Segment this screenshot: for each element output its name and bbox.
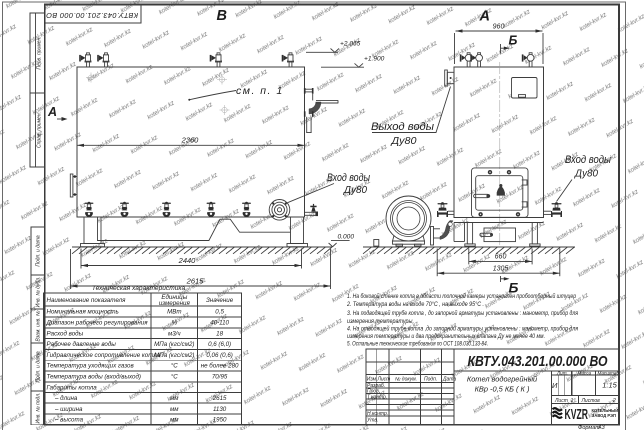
svg-text:Вход воды: Вход воды [565,154,611,166]
svg-text:0,06 (0,6): 0,06 (0,6) [206,352,232,359]
svg-text:Подп.: Подп. [424,377,437,383]
svg-text:Перв. примен.: Перв. примен. [37,36,43,69]
svg-text:Диапазон рабочего регулировани: Диапазон рабочего регулирования [46,320,149,327]
svg-text:5. Остальные технические треб: 5. Остальные технические требования по О… [347,341,488,348]
svg-text:1. На боковой стенке котла в: 1. На боковой стенке котла в области топ… [347,293,576,300]
svg-text:Изм.Лист: Изм.Лист [367,377,391,383]
svg-text:Лит.: Лит. [556,370,568,375]
svg-text:0,6 (6,0): 0,6 (6,0) [208,341,231,348]
svg-text:KVZR: KVZR [565,407,589,423]
svg-text:– длина: – длина [54,395,78,402]
svg-text:Расход воды: Расход воды [47,330,84,337]
svg-text:не более 280: не более 280 [201,363,239,370]
svg-text:ЗАВОД РЭП: ЗАВОД РЭП [592,413,616,418]
svg-text:м3/ч: м3/ч [168,330,181,337]
svg-text:МПа (кгс/см2): МПа (кгс/см2) [154,352,194,359]
svg-text:+1.900: +1.900 [364,56,385,63]
svg-text:2615: 2615 [212,395,227,402]
svg-text:Взам. инв. №: Взам. инв. № [36,310,42,342]
svg-text:Н.контр.: Н.контр. [367,411,388,417]
svg-text:измерения температуры и два пр: измерения температуры и два предохраните… [347,333,545,340]
svg-text:Габариты котла: Габариты котла [47,384,98,391]
svg-text:2360: 2360 [181,136,200,145]
svg-text:МПа (кгс/см2): МПа (кгс/см2) [154,341,194,348]
svg-text:А: А [47,105,57,119]
svg-text:Рабочее давление воды: Рабочее давление воды [47,341,117,348]
svg-text:0.000: 0.000 [338,233,355,240]
svg-text:Инв. № подл.: Инв. № подл. [36,392,42,423]
svg-text:Ду80: Ду80 [343,184,367,196]
svg-text:измерения температуры.: измерения температуры. [347,318,414,325]
svg-text:1: 1 [571,398,574,404]
svg-text:КВр -0,5 КБ ( К ): КВр -0,5 КБ ( К ) [475,385,530,394]
svg-text:Масштаб: Масштаб [598,370,620,375]
svg-text:40-110: 40-110 [210,320,229,327]
svg-text:Ду80: Ду80 [574,168,598,180]
svg-text:Т.контр.: Т.контр. [367,394,387,400]
svg-text:И: И [552,381,558,390]
svg-text:МВт: МВт [167,309,181,316]
svg-text:Дата: Дата [442,377,456,383]
svg-text:А: А [479,9,490,25]
svg-text:Б: Б [509,34,518,48]
svg-text:1:15: 1:15 [602,381,617,390]
svg-text:см. п. 1: см. п. 1 [236,85,284,97]
svg-text:Листов: Листов [581,398,601,404]
svg-text:2: 2 [612,398,616,404]
svg-text:°С: °С [171,374,178,381]
svg-text:Вход воды: Вход воды [327,172,370,184]
svg-text:Выход воды: Выход воды [371,121,434,133]
svg-text:Температура воды (вход/выход): Температура воды (вход/выход) [47,374,141,381]
svg-text:Справ. примен.: Справ. примен. [37,112,43,148]
svg-text:Техническая характеристика: Техническая характеристика [92,285,186,292]
svg-text:Ду80: Ду80 [390,135,416,147]
svg-text:Температура уходящих газов: Температура уходящих газов [47,363,135,370]
svg-text:№ докум.: № докум. [395,377,417,383]
svg-text:мм: мм [170,395,179,402]
svg-text:КВТУ.043.201.00.000 ВО: КВТУ.043.201.00.000 ВО [46,11,138,20]
svg-text:измерения: измерения [159,300,191,307]
svg-text:0,5: 0,5 [215,309,224,316]
svg-text:– высота: – высота [54,417,84,424]
svg-text:Инв. № дубл.: Инв. № дубл. [36,277,42,308]
svg-text:Лист: Лист [554,398,568,404]
svg-text:Наименование показателя: Наименование показателя [47,297,127,304]
svg-text:+2.065: +2.065 [340,41,361,48]
svg-text:мм: мм [170,406,179,413]
svg-text:3. На подводящей трубе котла: 3. На подводящей трубе котла , до запорн… [347,310,579,317]
svg-text:В: В [217,8,227,24]
svg-text:– ширина: – ширина [54,406,83,413]
svg-text:Масса: Масса [578,370,592,375]
svg-text:660: 660 [495,254,507,261]
svg-text:КВТУ.043.201.00.000 ВО: КВТУ.043.201.00.000 ВО [468,353,608,370]
svg-text:Подп. и дата: Подп. и дата [36,351,42,383]
svg-text:1950: 1950 [213,417,227,424]
svg-text:1130: 1130 [213,406,227,413]
svg-text:2. Температура воды на входе: 2. Температура воды на входе 70°С , на в… [346,301,484,308]
svg-text:А3: А3 [597,425,606,430]
svg-text:Утв.: Утв. [367,418,378,424]
svg-text:Котел водогрейный: Котел водогрейный [467,375,537,384]
svg-text:Гидравлическое сопротивление к: Гидравлическое сопротивление котла [47,352,161,359]
svg-text:4. На отводящей трубе котла ,: 4. На отводящей трубе котла ,до запорной… [347,326,579,333]
svg-text:Подп. и дата: Подп. и дата [36,235,42,267]
svg-text:2615: 2615 [186,276,205,285]
svg-text:18: 18 [216,330,223,337]
svg-text:%: % [172,320,178,327]
svg-text:70/95: 70/95 [212,374,228,381]
svg-text:°С: °С [171,363,178,370]
svg-text:Номинальная мощность: Номинальная мощность [47,309,119,316]
svg-text:2440: 2440 [178,256,197,265]
svg-text:Значение: Значение [206,297,234,304]
svg-text:1305: 1305 [493,266,509,273]
svg-text:960: 960 [493,23,505,30]
svg-text:Формат: Формат [578,425,600,430]
svg-text:мм: мм [170,417,179,424]
